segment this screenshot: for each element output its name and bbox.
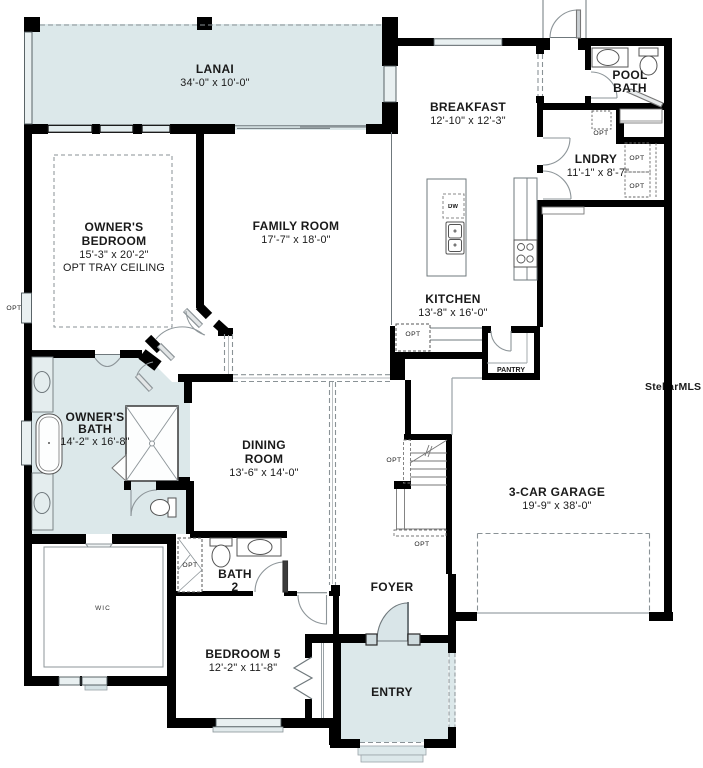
svg-text:13'-8" x 16'-0": 13'-8" x 16'-0": [418, 307, 487, 319]
svg-text:19'-9" x 38'-0": 19'-9" x 38'-0": [522, 500, 591, 512]
svg-text:OWNER'S: OWNER'S: [85, 220, 144, 234]
svg-text:13'-6" x 14'-0": 13'-6" x 14'-0": [229, 467, 298, 479]
svg-text:LNDRY: LNDRY: [575, 152, 617, 166]
svg-text:StellarMLS: StellarMLS: [645, 381, 701, 393]
svg-text:ROOM: ROOM: [245, 452, 284, 466]
svg-text:LANAI: LANAI: [196, 62, 234, 76]
svg-text:KITCHEN: KITCHEN: [425, 292, 480, 306]
svg-text:2: 2: [232, 580, 239, 594]
svg-text:PANTRY: PANTRY: [497, 367, 525, 374]
svg-text:3-CAR GARAGE: 3-CAR GARAGE: [509, 485, 605, 499]
svg-text:OPT TRAY CEILING: OPT TRAY CEILING: [63, 262, 165, 274]
svg-text:OPT: OPT: [593, 130, 608, 137]
svg-text:OPT: OPT: [405, 331, 420, 338]
svg-text:FOYER: FOYER: [371, 580, 414, 594]
svg-text:OPT: OPT: [629, 155, 644, 162]
svg-text:34'-0" x 10'-0": 34'-0" x 10'-0": [180, 77, 249, 89]
svg-text:DINING: DINING: [242, 438, 286, 452]
svg-text:11'-1" x 8'-7": 11'-1" x 8'-7": [567, 167, 629, 179]
svg-text:BATH: BATH: [613, 81, 647, 95]
svg-text:OPT: OPT: [629, 183, 644, 190]
svg-text:DW: DW: [448, 204, 458, 210]
svg-text:WIC: WIC: [95, 605, 111, 612]
svg-text:BEDROOM 5: BEDROOM 5: [205, 647, 280, 661]
svg-text:FAMILY ROOM: FAMILY ROOM: [253, 219, 340, 233]
svg-text:12'-2" x 11'-8": 12'-2" x 11'-8": [209, 662, 278, 674]
svg-text:15'-3" x 20'-2": 15'-3" x 20'-2": [79, 249, 148, 261]
svg-text:OPT: OPT: [414, 541, 429, 548]
svg-text:POOL: POOL: [612, 68, 647, 82]
svg-text:BEDROOM: BEDROOM: [82, 234, 147, 248]
svg-text:OPT: OPT: [6, 305, 21, 312]
svg-text:BATH: BATH: [218, 567, 252, 581]
svg-text:ENTRY: ENTRY: [371, 685, 413, 699]
svg-text:14'-2" x 16'-8": 14'-2" x 16'-8": [60, 436, 129, 448]
svg-text:BATH: BATH: [78, 422, 112, 436]
svg-text:OPT: OPT: [386, 457, 401, 464]
svg-text:12'-10" x 12'-3": 12'-10" x 12'-3": [430, 115, 506, 127]
svg-text:BREAKFAST: BREAKFAST: [430, 100, 506, 114]
svg-text:OPT: OPT: [182, 562, 197, 569]
svg-text:17'-7" x 18'-0": 17'-7" x 18'-0": [261, 234, 330, 246]
